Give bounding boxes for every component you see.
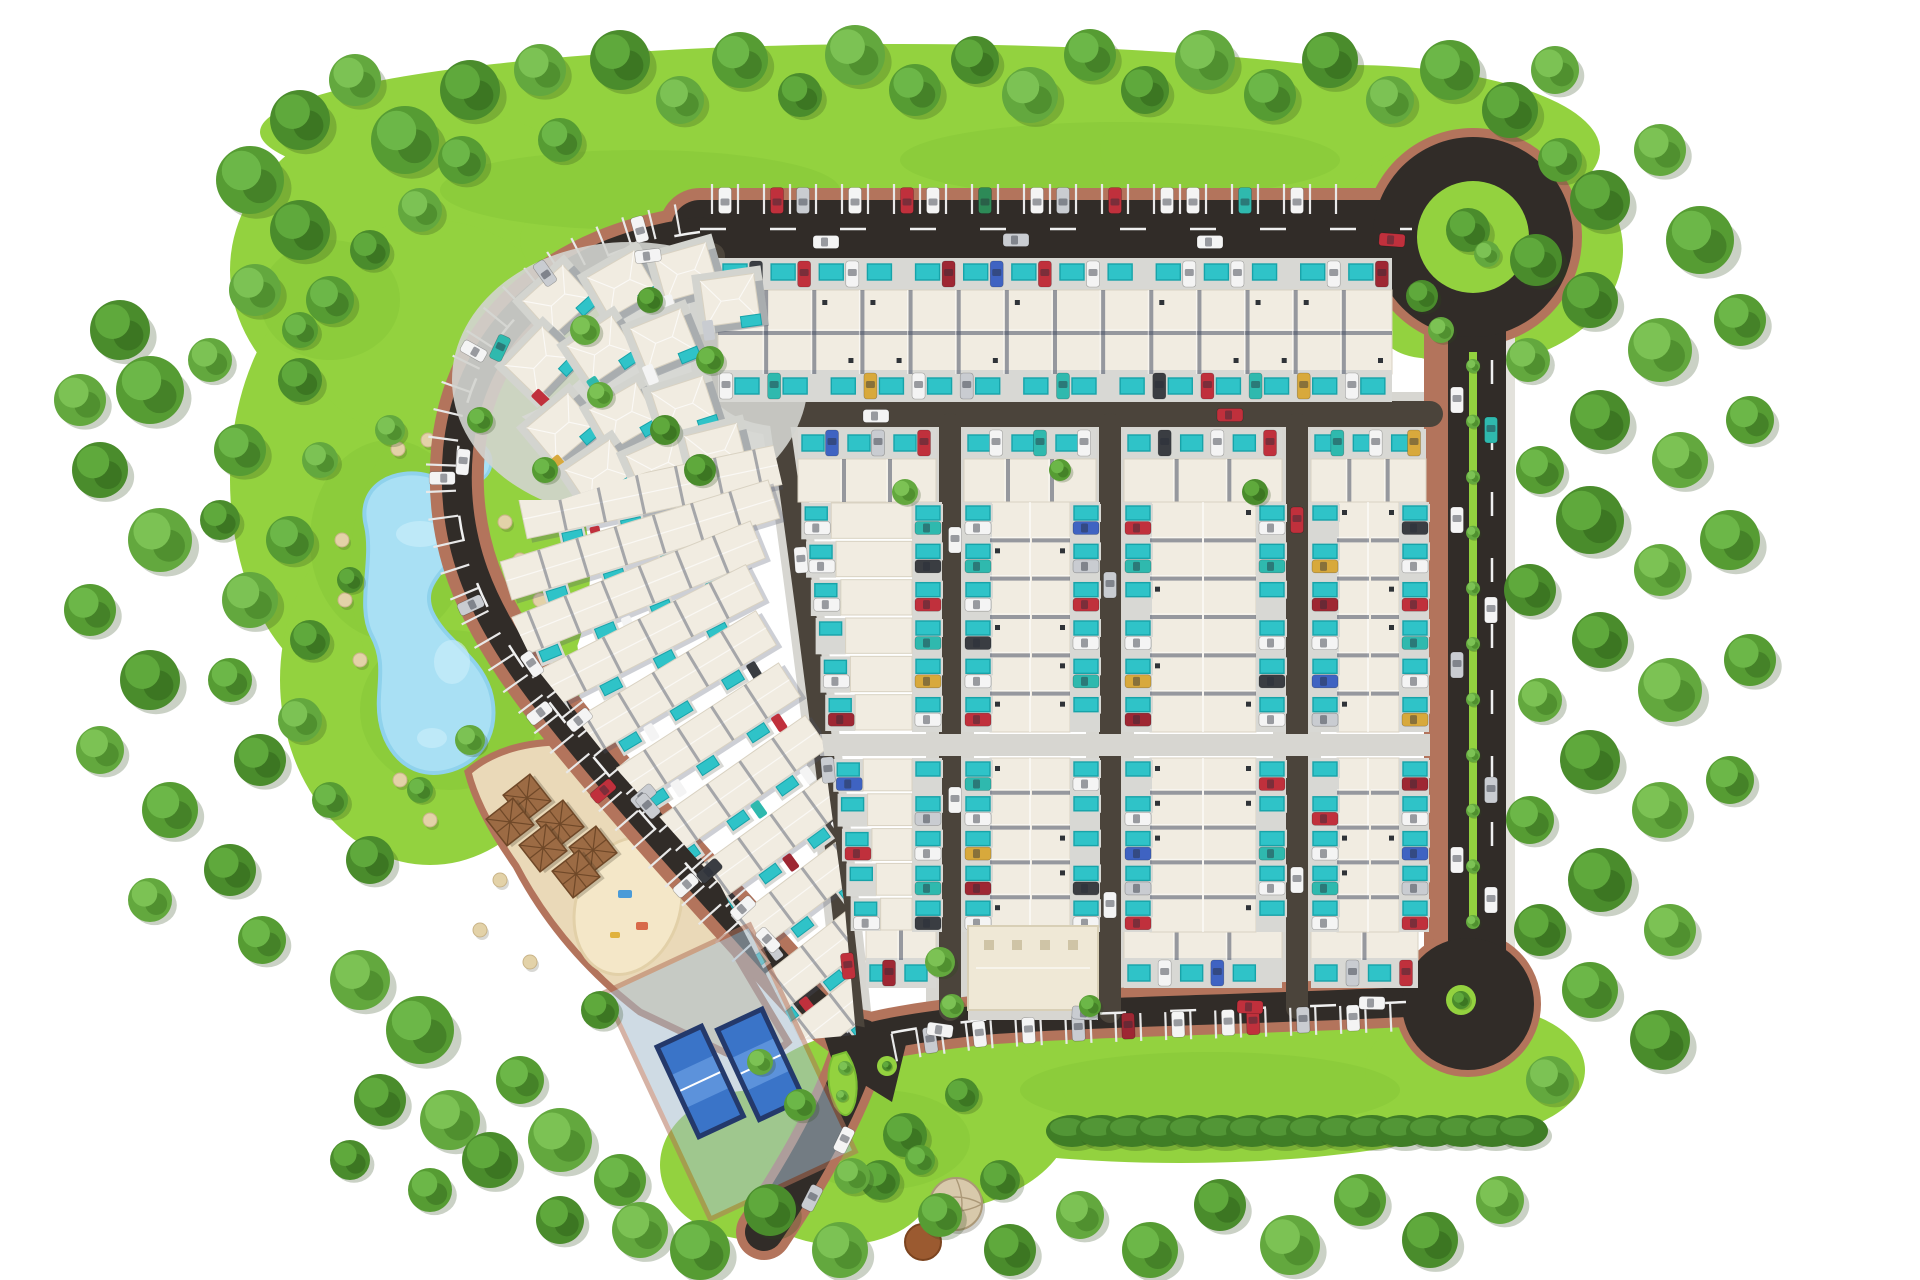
pool [848,435,870,451]
car [949,787,962,813]
roof-vent [1246,702,1251,707]
pool [1012,435,1034,451]
parking-stall-line [1340,1006,1341,1034]
car [1346,1005,1360,1032]
car [455,448,470,475]
pool [1074,544,1098,558]
terrace-unit [831,503,912,538]
pool [916,698,940,712]
pool [1074,797,1098,811]
pool [1313,797,1337,811]
pool [810,545,832,558]
roof-vent [1060,836,1065,841]
car [915,847,941,860]
pool [1233,965,1255,981]
pool [1126,797,1150,811]
lawn-patch [900,122,1340,198]
pool [966,659,990,673]
site-plan-svg [0,0,1920,1280]
pond-highlight [434,640,470,684]
car [849,188,862,214]
roof-vent [993,358,998,363]
car [1402,675,1428,688]
car [1485,777,1498,803]
car [1125,637,1151,650]
car [1237,1000,1263,1014]
car [813,236,839,249]
pool [905,965,927,981]
pool [1074,901,1098,915]
car [429,472,455,485]
car [915,637,941,650]
parking-stall-line [1265,1009,1266,1037]
car [965,522,991,535]
car [1312,882,1338,895]
pool [1074,506,1098,520]
pool [966,583,990,597]
pool [966,901,990,915]
car [1312,917,1338,930]
roof-vent [822,300,827,305]
pool [1056,435,1078,451]
pool [916,264,940,280]
pool [1403,762,1427,776]
roof-vent [1342,702,1347,707]
car [1125,675,1151,688]
car [960,373,973,399]
car [1312,713,1338,726]
pool [1128,965,1150,981]
pool [815,584,837,597]
car [1038,261,1051,287]
pool [966,506,990,520]
pool [1403,621,1427,635]
car [768,373,781,399]
roof-vent [995,702,1000,707]
car [872,430,885,456]
car [1073,675,1099,688]
masterplan-render: Aerial 3D masterplan render of a gated v… [0,0,1920,1280]
car [972,1020,988,1047]
car [1221,1009,1235,1035]
parking-stall-line [1290,1008,1291,1036]
pool [1315,965,1337,981]
play-equipment-icon [636,922,648,930]
car [1104,892,1117,918]
roof-vent [1389,510,1394,515]
car [965,713,991,726]
car [820,756,835,783]
car [1153,373,1166,399]
car [918,430,931,456]
car [1171,1011,1185,1037]
pool [966,866,990,880]
pool [916,832,940,846]
car [1109,188,1122,214]
pool [1313,698,1337,712]
pool [1313,866,1337,880]
roof-vent [1159,300,1164,305]
car [1485,887,1498,913]
pool [916,621,940,635]
car [915,675,941,688]
pool [966,832,990,846]
parasol-icon [353,653,367,667]
pool [1024,378,1048,394]
pool [916,583,940,597]
parking-stall-line [1190,1011,1191,1039]
terrace-unit [872,829,912,861]
terrace-row [964,459,1096,502]
roof-vent [1060,663,1065,668]
car [942,261,955,287]
car [927,188,940,214]
car [1451,847,1464,873]
car [1408,430,1421,456]
pool [1403,866,1427,880]
pool [829,699,851,712]
car [1239,188,1252,214]
pool [1233,435,1255,451]
roof-vent [1389,625,1394,630]
car [1259,522,1285,535]
terrace-row [1311,459,1426,502]
car [1078,430,1091,456]
car [915,522,941,535]
car [1402,847,1428,860]
car [1087,261,1100,287]
car [804,522,830,535]
roof-vent [1304,300,1309,305]
pool [1060,264,1084,280]
pool [1260,659,1284,673]
car [965,598,991,611]
car [1003,234,1029,247]
pool [1313,621,1337,635]
pool [1403,544,1427,558]
car [1359,996,1385,1009]
car [1402,713,1428,726]
car [1259,847,1285,860]
pool [1126,901,1150,915]
pool [1260,797,1284,811]
car [1451,652,1464,678]
pool [805,507,827,520]
pool [1265,378,1289,394]
parking-stall-line [1390,1004,1391,1032]
car [1327,261,1340,287]
pool [1126,544,1150,558]
car [826,430,839,456]
pool [1369,965,1391,981]
car [1031,188,1044,214]
pool [964,264,988,280]
car [915,598,941,611]
pool [976,378,1000,394]
car [1125,713,1151,726]
car [979,188,992,214]
car [1231,261,1244,287]
car [949,527,962,553]
parking-stall-line [1140,1013,1141,1041]
skylight [1040,940,1050,950]
pool [916,797,940,811]
pool [966,698,990,712]
pool [1260,901,1284,915]
car [1073,637,1099,650]
pool [1313,762,1337,776]
car [1402,917,1428,930]
pool [1126,621,1150,635]
parasol-icon [523,955,537,969]
roof-vent [897,358,902,363]
pool [1126,659,1150,673]
roof-vent [995,766,1000,771]
car [1345,373,1358,399]
roof-vent [870,300,875,305]
car [1485,597,1498,623]
car [1183,261,1196,287]
pool [1126,698,1150,712]
roof-vent [1246,905,1251,910]
parasol-icon [393,773,407,787]
car [1125,882,1151,895]
pool [1074,866,1098,880]
car [965,882,991,895]
pool [802,435,824,451]
car [846,261,859,287]
pool [894,435,916,451]
pool [1120,378,1144,394]
pool [1403,901,1427,915]
pool [1361,378,1385,394]
pool [966,797,990,811]
car [1312,812,1338,825]
pool [1403,659,1427,673]
parking-stall-line [1040,1017,1041,1045]
parasol-icon [335,533,349,547]
car [990,261,1003,287]
car [1073,560,1099,573]
skylight [984,940,994,950]
pool [966,544,990,558]
car [1485,417,1498,443]
pool [1313,832,1337,846]
roof-vent [1246,510,1251,515]
roof-vent [1060,548,1065,553]
pool [740,314,761,328]
car [1375,261,1388,287]
pool [1128,435,1150,451]
parking-stall-line [1215,1010,1216,1038]
parasol-icon [493,873,507,887]
roof-vent [1060,702,1065,707]
car [1211,960,1224,986]
car [1451,387,1464,413]
car [1021,1017,1035,1044]
terrace-unit [855,695,912,730]
car [915,882,941,895]
pool [1074,621,1098,635]
pool [916,762,940,776]
pool [1074,698,1098,712]
roof-vent [995,548,1000,553]
car [797,188,810,214]
parasol-icon [423,813,437,827]
pool [1403,797,1427,811]
pool [1260,506,1284,520]
pool [1216,378,1240,394]
roof-vent [1060,625,1065,630]
pool [1260,583,1284,597]
sidewalk-right [1506,298,1515,964]
pool [968,435,990,451]
car [794,547,809,574]
car [1057,373,1070,399]
roof-vent [1282,358,1287,363]
terrace-unit [836,541,912,576]
car [1402,778,1428,791]
pool [783,378,807,394]
pool [1313,544,1337,558]
roof-vent [1342,510,1347,515]
roof-vent [1234,358,1239,363]
car [912,373,925,399]
parking-stall-line [1115,1014,1116,1042]
car [901,188,914,214]
parking-stall-line [1315,1007,1316,1035]
car [1264,430,1277,456]
roof-vent [995,905,1000,910]
pool [1313,378,1337,394]
pool [867,264,891,280]
car [1312,598,1338,611]
car [1125,560,1151,573]
car [1249,373,1262,399]
car [1259,882,1285,895]
pool [1260,698,1284,712]
car [1197,236,1223,249]
pool [1403,832,1427,846]
roof-vent [1246,766,1251,771]
pool [1126,762,1150,776]
car [1259,778,1285,791]
car [1073,522,1099,535]
pool [1126,583,1150,597]
car [883,960,896,986]
pool [1349,264,1373,280]
car [634,248,661,264]
car [798,261,811,287]
car [836,778,862,791]
parking-stall-line [426,491,456,492]
terrace-unit [846,618,912,653]
pool [1403,698,1427,712]
pool [966,762,990,776]
skylight [1068,940,1078,950]
car [1291,867,1304,893]
pool [1313,901,1337,915]
car [1312,675,1338,688]
roof-vent [1155,663,1160,668]
car [1451,507,1464,533]
pool [916,901,940,915]
terrace-unit [881,898,912,930]
car [1402,560,1428,573]
pool [1301,264,1325,280]
pool [1126,832,1150,846]
roof-vent [1246,801,1251,806]
play-equipment-icon [618,890,632,898]
hedge-highlight [1500,1118,1534,1136]
car [1379,233,1406,248]
car [1259,560,1285,573]
terrace-unit [863,759,912,791]
roof-vent [1155,587,1160,592]
car [1187,188,1200,214]
car [965,778,991,791]
parasol-icon [498,515,512,529]
car [814,598,840,611]
car [915,917,941,930]
car [720,373,733,399]
pool [837,763,859,776]
car [1312,560,1338,573]
car [1161,188,1174,214]
car [1346,960,1359,986]
roof-vent [1155,766,1160,771]
pool [1403,583,1427,597]
pool [1108,264,1132,280]
terrace-unit [841,580,912,615]
pool [1126,506,1150,520]
pool [842,798,864,811]
pool [966,621,990,635]
parking-stall-line [1065,1016,1066,1044]
pool [1156,264,1180,280]
car [1259,713,1285,726]
roof-vent [1256,300,1261,305]
car [823,675,849,688]
car [915,812,941,825]
pool [916,506,940,520]
pool [846,833,868,846]
car [863,410,889,423]
car [809,560,835,573]
pool [1313,659,1337,673]
parasol-icon [473,923,487,937]
roof-vent [1342,870,1347,875]
car [1073,598,1099,611]
car [965,847,991,860]
car [1073,778,1099,791]
parasol-icon [338,593,352,607]
car [1312,847,1338,860]
parking-stall-line [426,464,456,465]
pool [1253,264,1277,280]
mid-block-walkway [820,734,1430,756]
car [1073,882,1099,895]
parking-stall-line [1240,1010,1241,1038]
pool [1260,621,1284,635]
pool [855,902,877,915]
car [1331,430,1344,456]
roof-vent [848,358,853,363]
pool [1181,965,1203,981]
car [1217,409,1243,422]
pool [1126,866,1150,880]
car [845,847,871,860]
